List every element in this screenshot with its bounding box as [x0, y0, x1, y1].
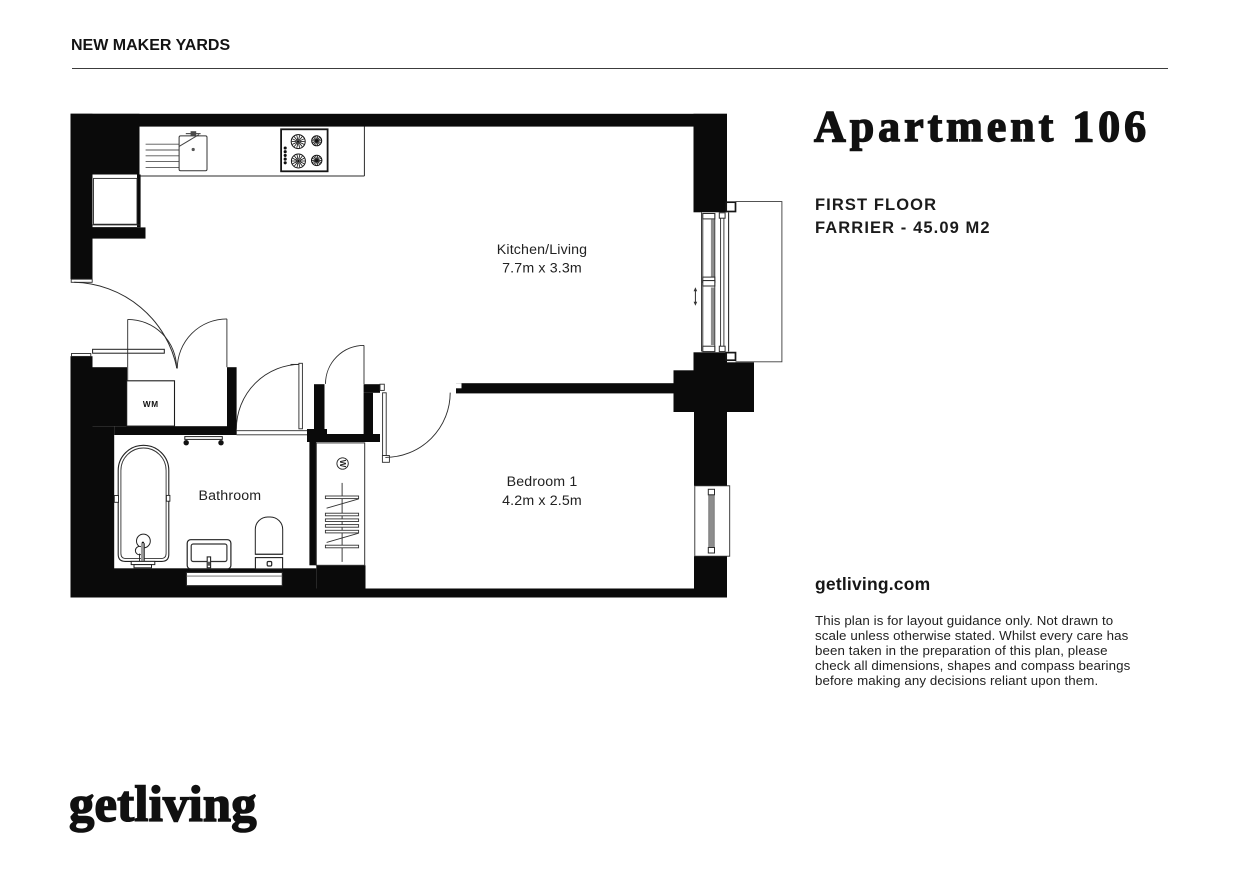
svg-text:Bedroom 1: Bedroom 1: [507, 474, 578, 490]
svg-text:4.2m x 2.5m: 4.2m x 2.5m: [502, 493, 582, 509]
svg-text:7.7m x 3.3m: 7.7m x 3.3m: [502, 261, 582, 277]
svg-text:W: W: [338, 460, 347, 468]
svg-text:WM: WM: [143, 400, 159, 409]
svg-text:Kitchen/Living: Kitchen/Living: [497, 242, 587, 258]
svg-text:Bathroom: Bathroom: [199, 488, 262, 504]
